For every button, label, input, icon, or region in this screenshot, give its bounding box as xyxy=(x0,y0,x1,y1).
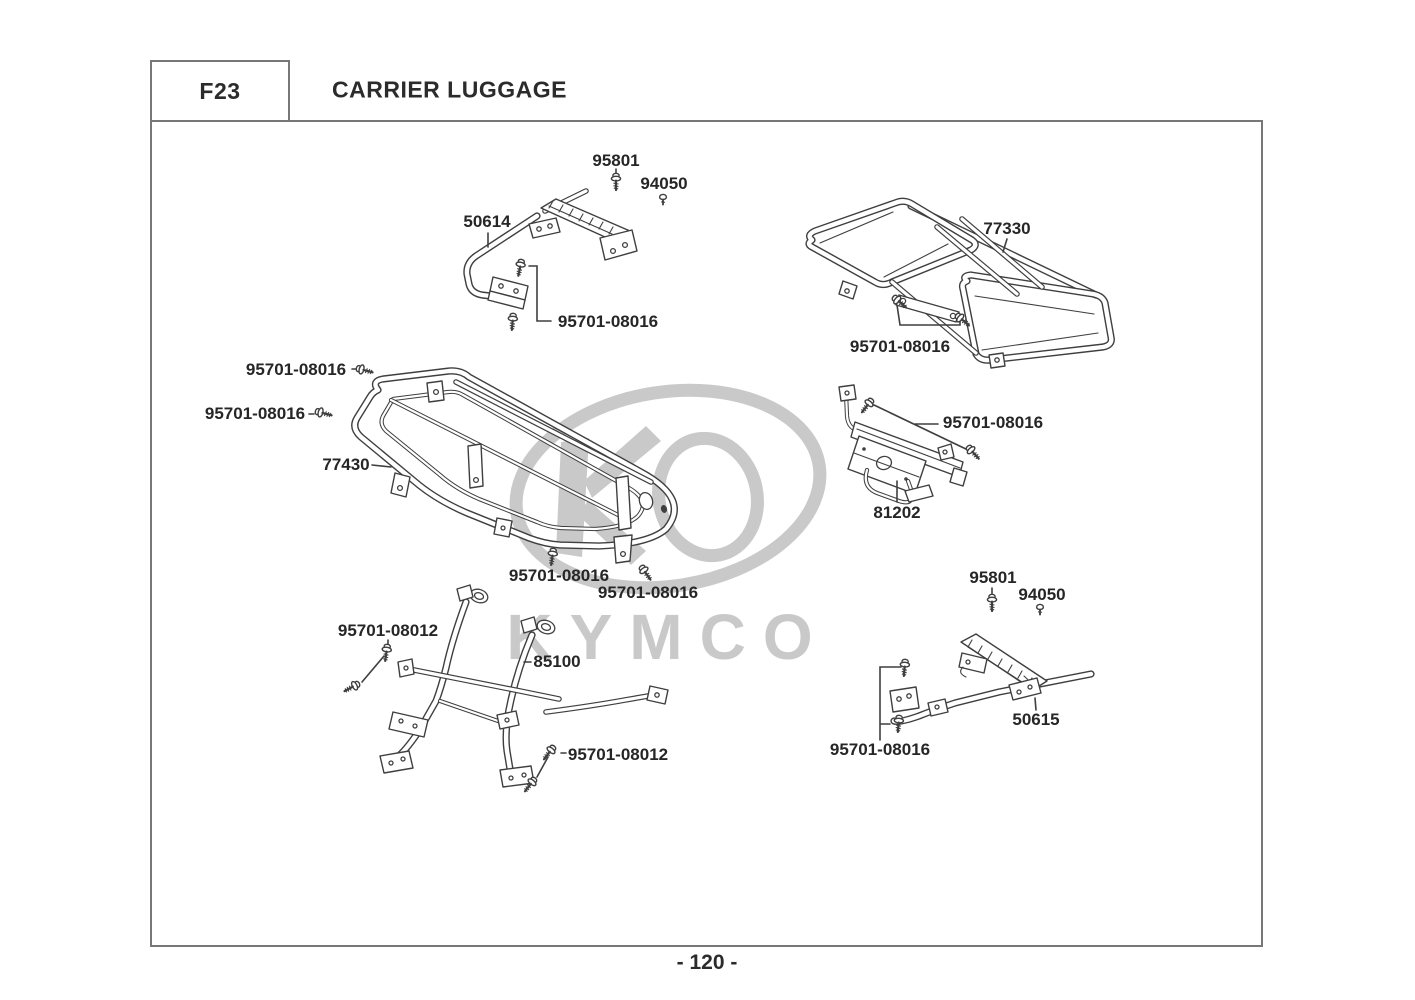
bolt-icon xyxy=(355,364,374,377)
part-label-77330: 77330 xyxy=(983,219,1030,239)
bolt-label-frame-lower-left: 95701-08016 xyxy=(205,404,305,424)
part-label-50614: 50614 xyxy=(463,212,510,232)
bolt-icon xyxy=(314,407,333,420)
drawing-50615 xyxy=(890,634,1091,721)
screw-label-95801-rear-footrest: 95801 xyxy=(969,568,1016,588)
bolt-icon xyxy=(637,563,654,582)
bolt-icon xyxy=(342,679,361,695)
page-number: - 120 - xyxy=(677,951,738,975)
bolt-label-guard-left: 95701-08012 xyxy=(338,621,438,641)
bolt-label-front-footrest: 95701-08016 xyxy=(558,312,658,332)
bolt-icon xyxy=(507,313,518,330)
bolt-label-rear-rack: 95701-08016 xyxy=(850,337,950,357)
bolt-icon xyxy=(540,743,558,762)
part-label-81202: 81202 xyxy=(873,503,920,523)
bolt-label-frame-bottom-left: 95701-08016 xyxy=(509,566,609,586)
nut-label-94050-rear-footrest: 94050 xyxy=(1018,585,1065,605)
part-label-50615: 50615 xyxy=(1012,710,1059,730)
screw-label-95801-front-footrest: 95801 xyxy=(592,151,639,171)
bolt-label-rear-footrest: 95701-08016 xyxy=(830,740,930,760)
bolt-label-frame-bottom-right: 95701-08016 xyxy=(598,583,698,603)
bolt-icon xyxy=(964,443,982,462)
bolt-icon xyxy=(987,594,996,611)
nut-icon xyxy=(660,194,667,204)
bolt-label-frame-upper-left: 95701-08016 xyxy=(246,360,346,380)
part-label-77430: 77430 xyxy=(322,455,369,475)
bolt-icon xyxy=(514,258,526,276)
exploded-diagram: KYMCO xyxy=(0,0,1415,1000)
bolt-label-rear-bracket: 95701-08016 xyxy=(943,413,1043,433)
nut-label-94050-front-footrest: 94050 xyxy=(640,174,687,194)
bolt-icon xyxy=(858,396,876,415)
drawing-81202 xyxy=(839,385,967,502)
part-label-85100: 85100 xyxy=(533,652,580,672)
catalog-page: F23 CARRIER LUGGAGE xyxy=(0,0,1415,1000)
bolt-label-guard-bottom: 95701-08012 xyxy=(568,745,668,765)
nut-icon xyxy=(1037,604,1044,614)
bolt-icon xyxy=(611,173,620,190)
drawing-50614 xyxy=(467,191,637,309)
leader-lines xyxy=(309,169,1036,777)
